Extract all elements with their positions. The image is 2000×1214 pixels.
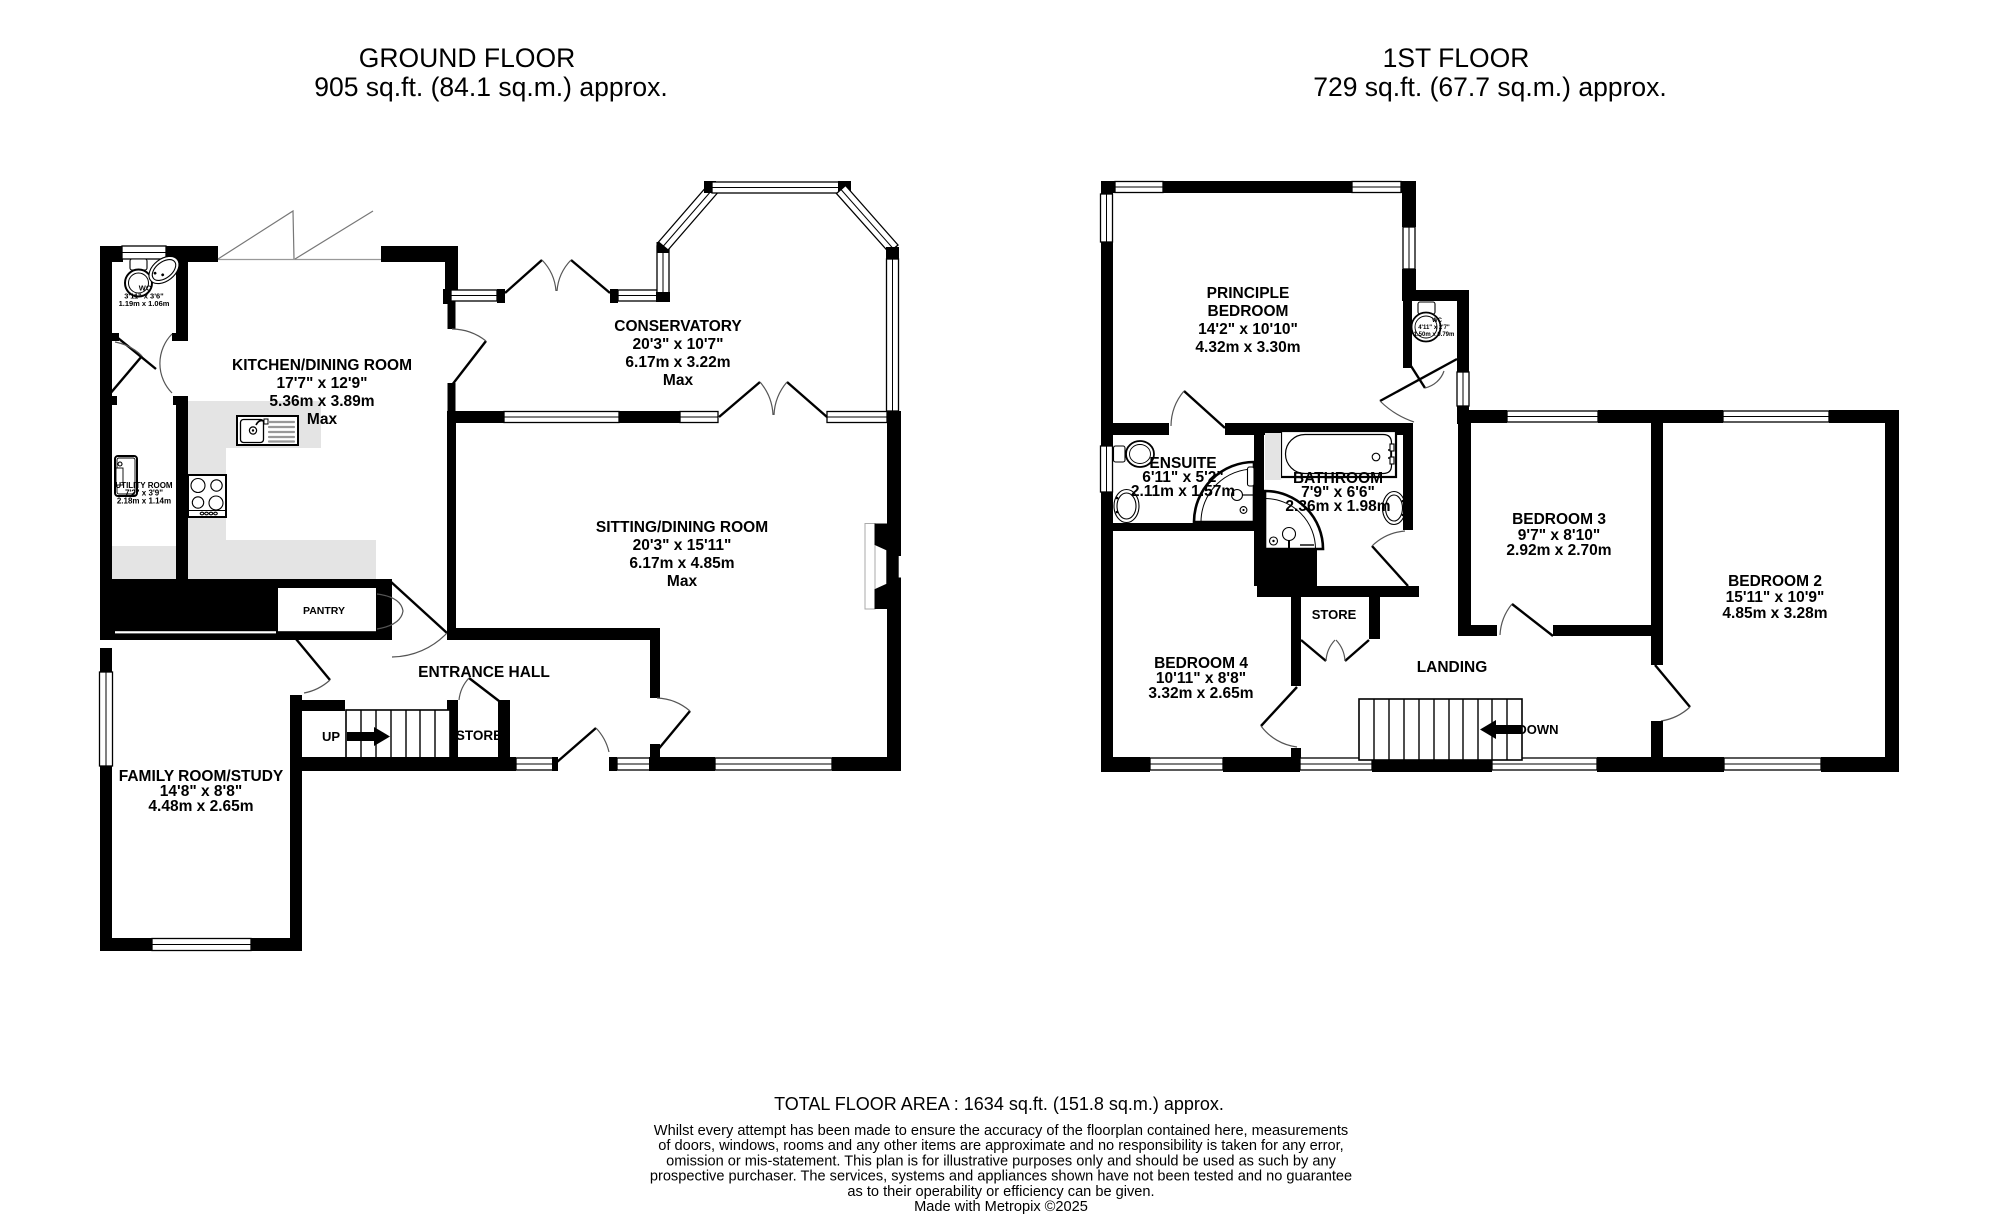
svg-text:TOTAL FLOOR AREA : 1634 sq.ft.: TOTAL FLOOR AREA : 1634 sq.ft. (151.8 sq…: [774, 1094, 1224, 1114]
svg-text:3.32m x 2.65m: 3.32m x 2.65m: [1148, 685, 1253, 702]
svg-text:as to their operability or eff: as to their operability or efficiency ca…: [847, 1184, 1154, 1200]
svg-text:omission or mis-statement. Thi: omission or mis-statement. This plan is …: [666, 1153, 1336, 1169]
svg-text:6.17m x 3.22m: 6.17m x 3.22m: [625, 354, 730, 371]
svg-text:STORE: STORE: [456, 728, 502, 743]
svg-text:6.17m x 4.85m: 6.17m x 4.85m: [629, 555, 734, 572]
svg-text:UP: UP: [322, 729, 340, 744]
svg-text:CONSERVATORY: CONSERVATORY: [614, 318, 742, 335]
svg-text:905 sq.ft. (84.1 sq.m.) approx: 905 sq.ft. (84.1 sq.m.) approx.: [314, 72, 668, 102]
svg-text:20'3" x 10'7": 20'3" x 10'7": [632, 336, 723, 353]
svg-text:729 sq.ft. (67.7 sq.m.) approx: 729 sq.ft. (67.7 sq.m.) approx.: [1313, 72, 1667, 102]
svg-text:WC: WC: [1432, 318, 1443, 324]
svg-text:4.85m x 3.28m: 4.85m x 3.28m: [1722, 605, 1827, 622]
svg-text:4'11" x 2'7": 4'11" x 2'7": [1418, 325, 1450, 331]
svg-text:1ST FLOOR: 1ST FLOOR: [1383, 43, 1530, 73]
svg-text:LANDING: LANDING: [1417, 659, 1488, 676]
svg-text:SITTING/DINING ROOM: SITTING/DINING ROOM: [596, 519, 768, 536]
svg-text:4.32m x 3.30m: 4.32m x 3.30m: [1195, 339, 1300, 356]
svg-text:15'11" x 10'9": 15'11" x 10'9": [1726, 589, 1825, 606]
svg-text:KITCHEN/DINING ROOM: KITCHEN/DINING ROOM: [232, 357, 412, 374]
svg-text:DOWN: DOWN: [1517, 722, 1558, 737]
svg-text:ENTRANCE HALL: ENTRANCE HALL: [418, 664, 550, 681]
svg-text:2.11m x 1.57m: 2.11m x 1.57m: [1131, 483, 1235, 500]
svg-text:20'3" x 15'11": 20'3" x 15'11": [633, 537, 732, 554]
svg-text:14'2" x 10'10": 14'2" x 10'10": [1198, 321, 1298, 338]
svg-text:Whilst every attempt has been: Whilst every attempt has been made to en…: [654, 1123, 1348, 1139]
svg-text:2.92m x 2.70m: 2.92m x 2.70m: [1506, 542, 1611, 559]
svg-text:17'7" x 12'9": 17'7" x 12'9": [276, 375, 367, 392]
svg-text:prospective purchaser. The ser: prospective purchaser. The services, sys…: [650, 1169, 1352, 1185]
svg-text:2.18m x 1.14m: 2.18m x 1.14m: [117, 497, 171, 506]
svg-text:STORE: STORE: [1312, 607, 1357, 622]
svg-text:BEDROOM 3: BEDROOM 3: [1512, 511, 1606, 528]
svg-text:Max: Max: [667, 573, 698, 590]
svg-text:BEDROOM 2: BEDROOM 2: [1728, 573, 1822, 590]
svg-text:5.36m x 3.89m: 5.36m x 3.89m: [269, 393, 374, 410]
svg-text:PRINCIPLE: PRINCIPLE: [1207, 285, 1290, 302]
svg-text:Made with Metropix ©2025: Made with Metropix ©2025: [914, 1199, 1088, 1214]
svg-text:4.48m x 2.65m: 4.48m x 2.65m: [148, 798, 253, 815]
svg-text:Max: Max: [307, 411, 338, 428]
svg-text:1.50m x 0.79m: 1.50m x 0.79m: [1414, 332, 1455, 338]
svg-text:1.19m x 1.06m: 1.19m x 1.06m: [119, 299, 170, 308]
svg-text:PANTRY: PANTRY: [303, 605, 345, 617]
svg-text:GROUND FLOOR: GROUND FLOOR: [359, 43, 575, 73]
svg-text:Max: Max: [663, 372, 694, 389]
svg-text:2.36m x 1.98m: 2.36m x 1.98m: [1285, 498, 1390, 515]
svg-text:of doors, windows, rooms and a: of doors, windows, rooms and any other i…: [658, 1138, 1343, 1154]
svg-text:BEDROOM: BEDROOM: [1208, 303, 1289, 320]
